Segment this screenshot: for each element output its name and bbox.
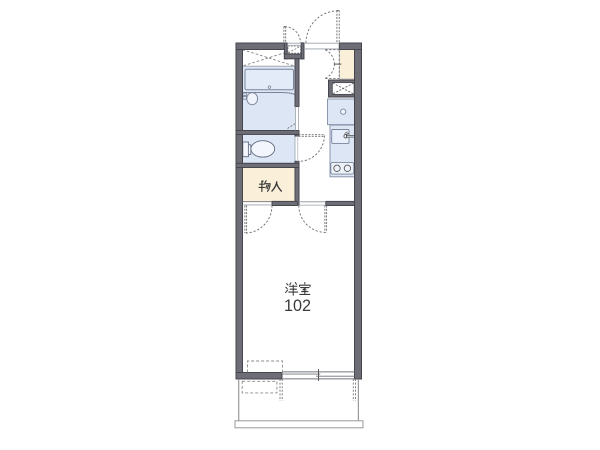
svg-text:102: 102	[284, 297, 311, 315]
